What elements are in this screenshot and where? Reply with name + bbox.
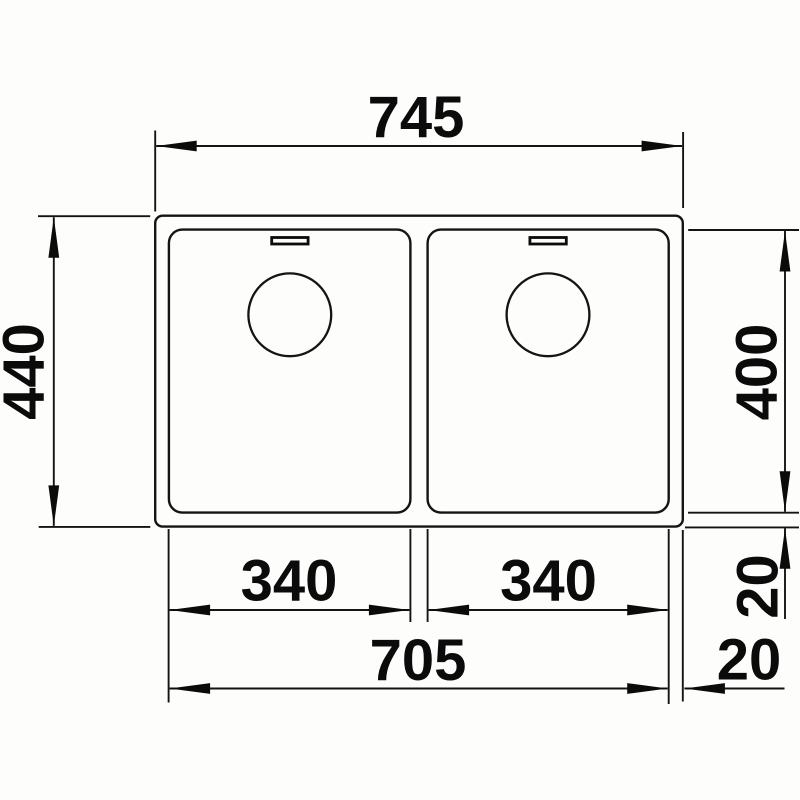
svg-text:440: 440 (0, 323, 57, 420)
svg-text:745: 745 (368, 85, 465, 150)
svg-text:340: 340 (500, 549, 597, 614)
svg-text:20: 20 (726, 554, 791, 619)
svg-text:705: 705 (370, 628, 467, 693)
svg-text:20: 20 (717, 628, 782, 693)
svg-text:340: 340 (241, 549, 338, 614)
svg-text:400: 400 (725, 324, 790, 421)
